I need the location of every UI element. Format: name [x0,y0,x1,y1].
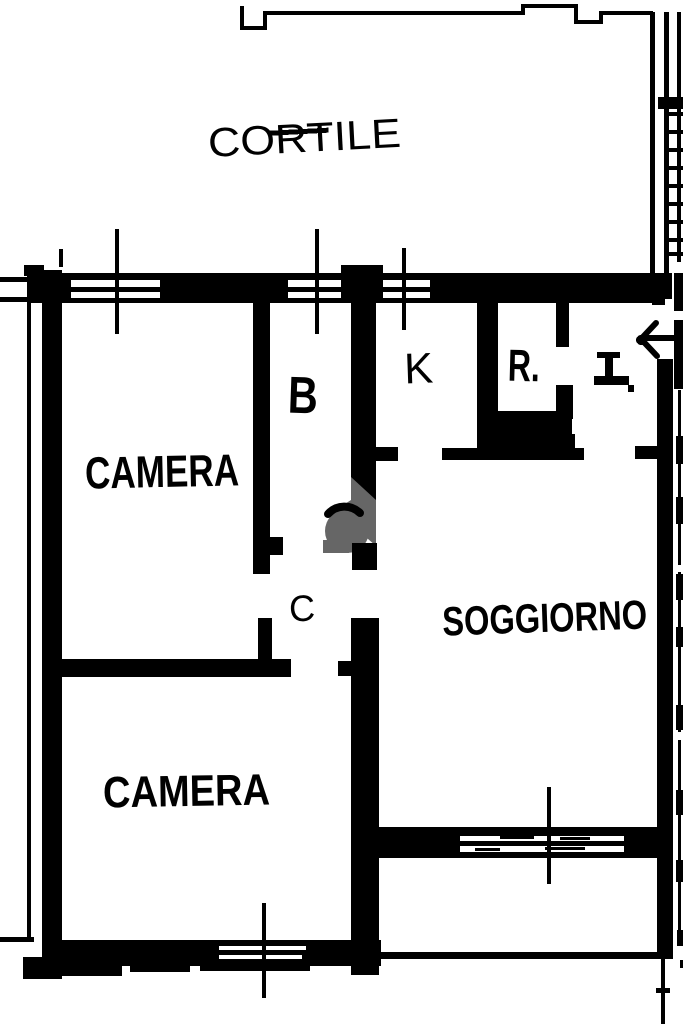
svg-text:B: B [287,366,319,425]
svg-text:C: C [288,588,315,630]
svg-text:CAMERA: CAMERA [84,444,239,498]
svg-text:CAMERA: CAMERA [103,766,271,818]
svg-text:R.: R. [507,340,540,392]
svg-text:SOGGIORNO: SOGGIORNO [441,591,647,644]
svg-text:K: K [403,344,434,393]
